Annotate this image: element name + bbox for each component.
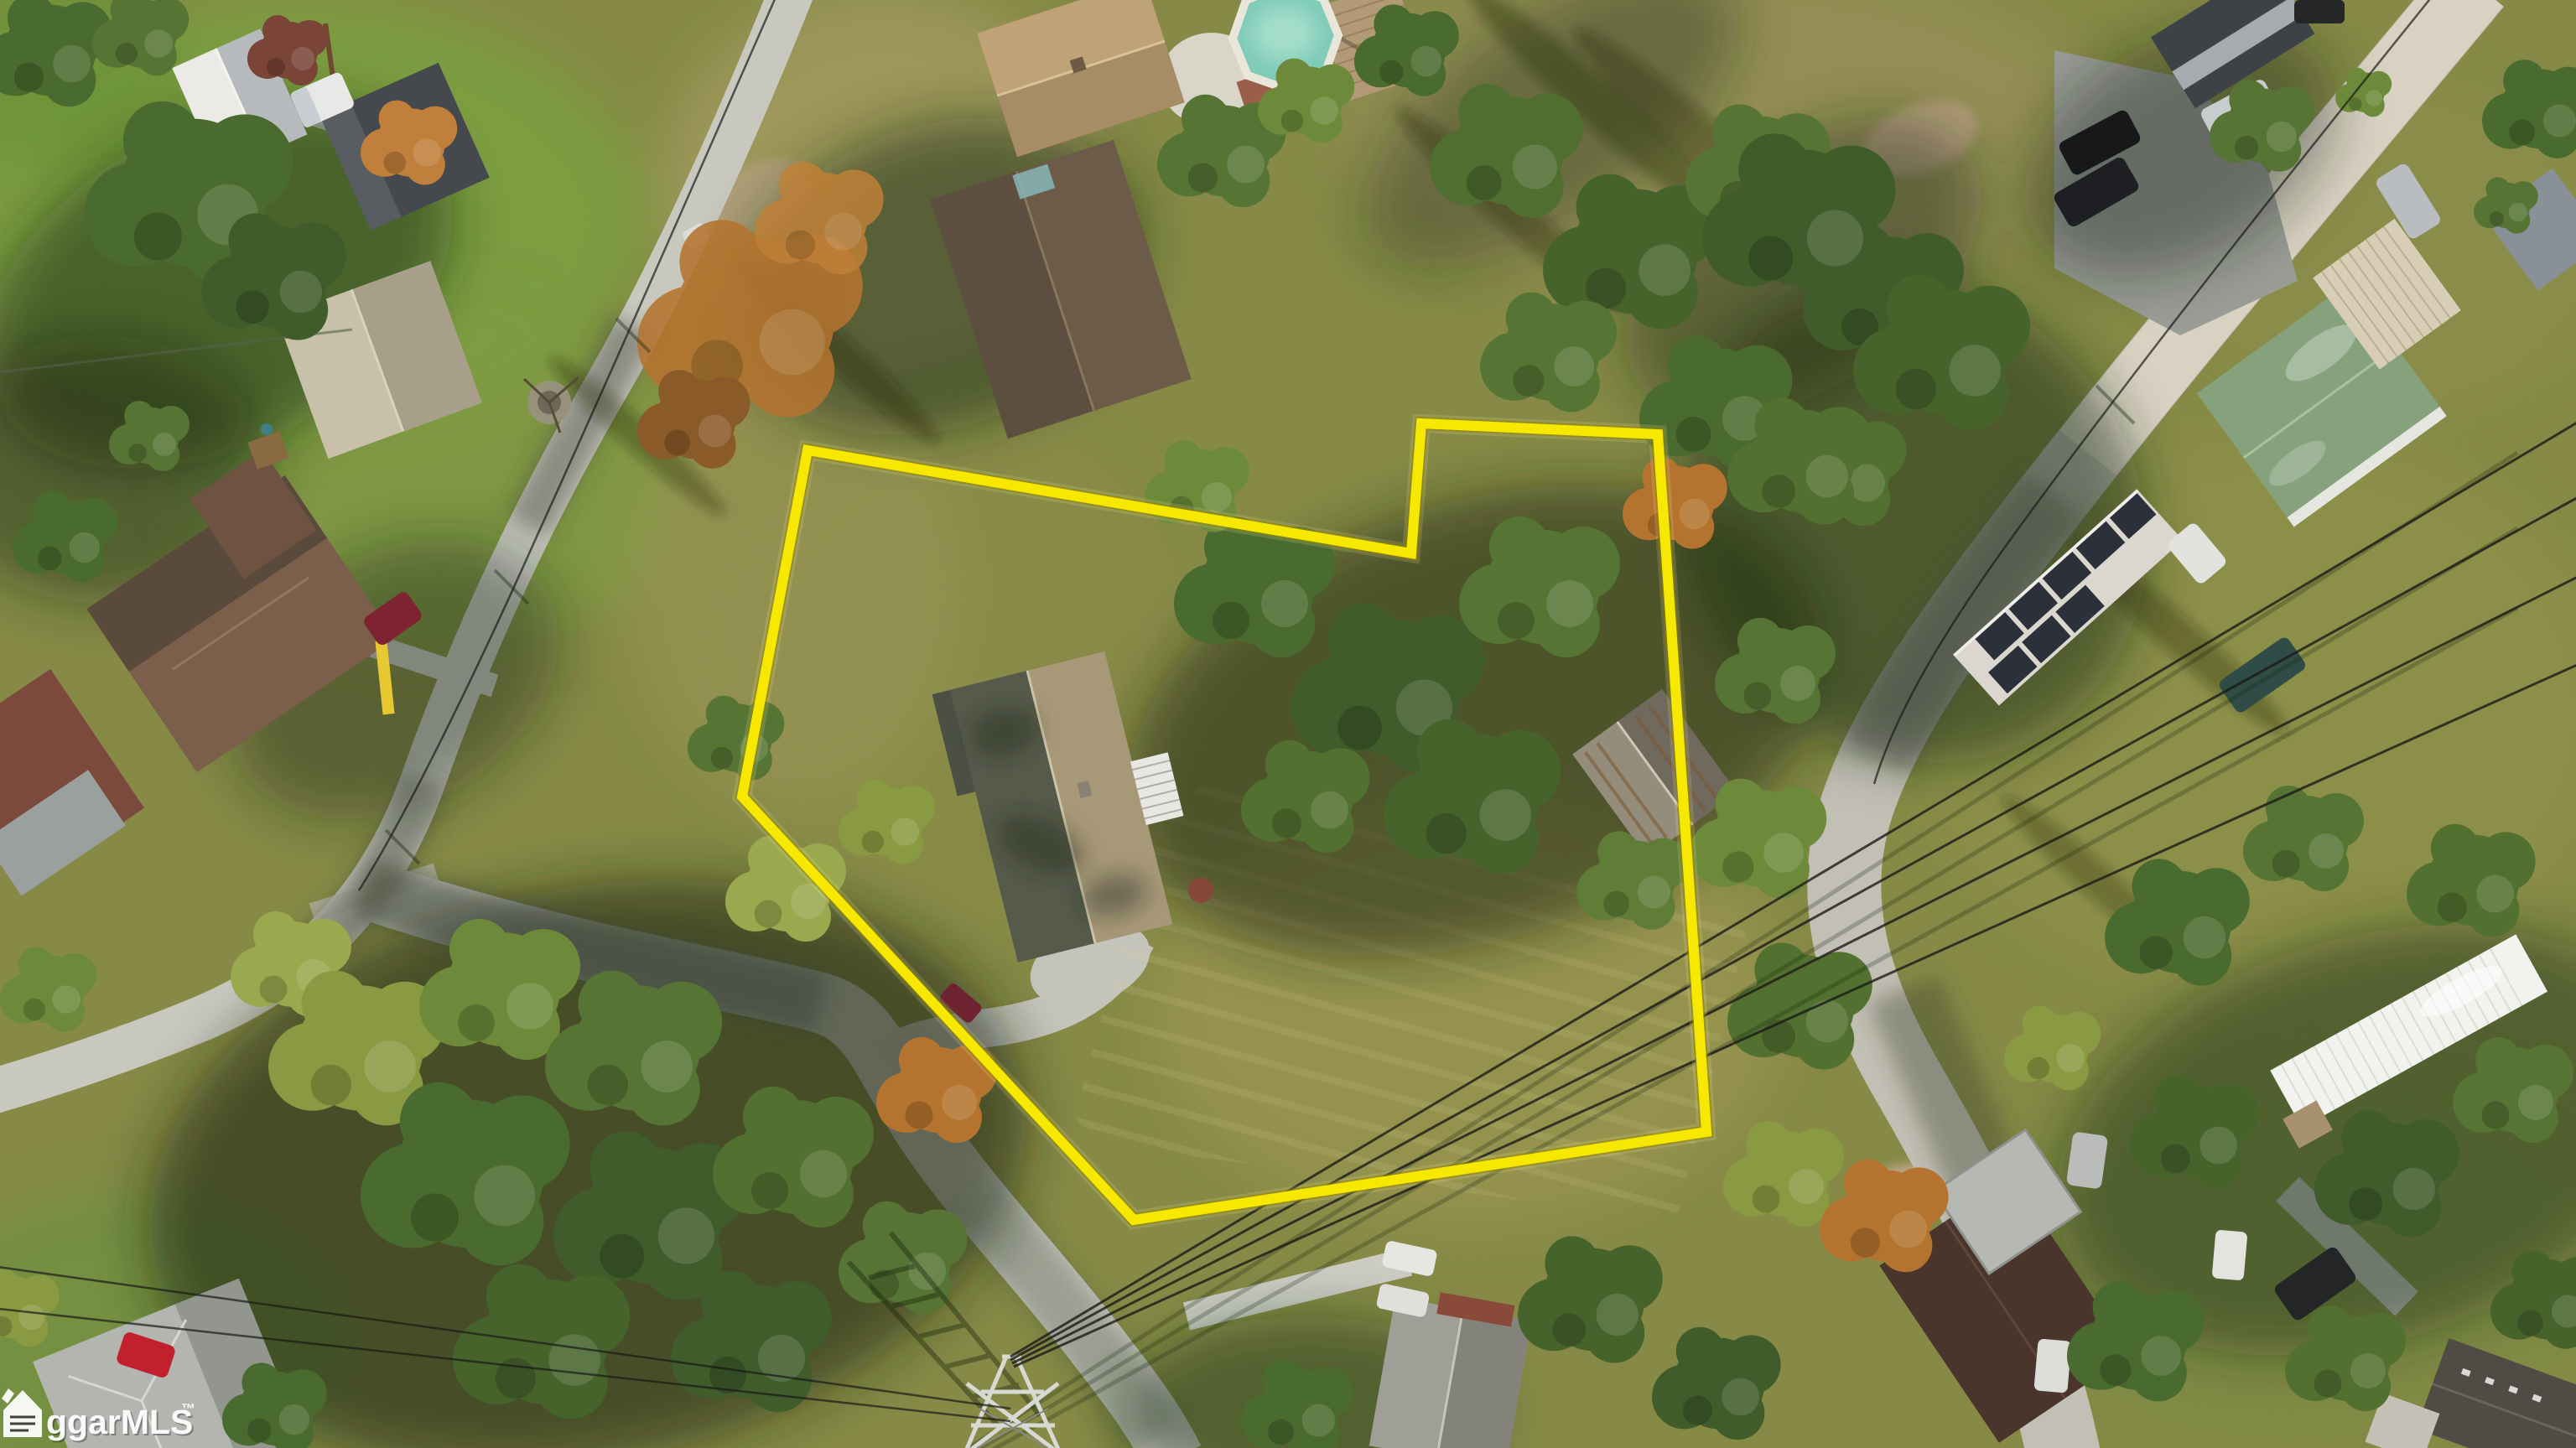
car-white-right-road-2 xyxy=(2033,1338,2071,1393)
car-white-right-road xyxy=(2212,1229,2248,1280)
watermark-trademark: ™ xyxy=(181,1401,195,1417)
watermark-text: ggarMLS xyxy=(46,1403,193,1441)
aerial-photo-canvas: ggarMLS ggarMLS ™ xyxy=(0,0,2576,1448)
minivan-gray xyxy=(2066,1131,2108,1189)
aerial-listing-photo: ggarMLS ggarMLS ™ xyxy=(0,0,2576,1448)
van-dark-top xyxy=(2294,0,2345,23)
red-shrub xyxy=(1188,878,1213,903)
